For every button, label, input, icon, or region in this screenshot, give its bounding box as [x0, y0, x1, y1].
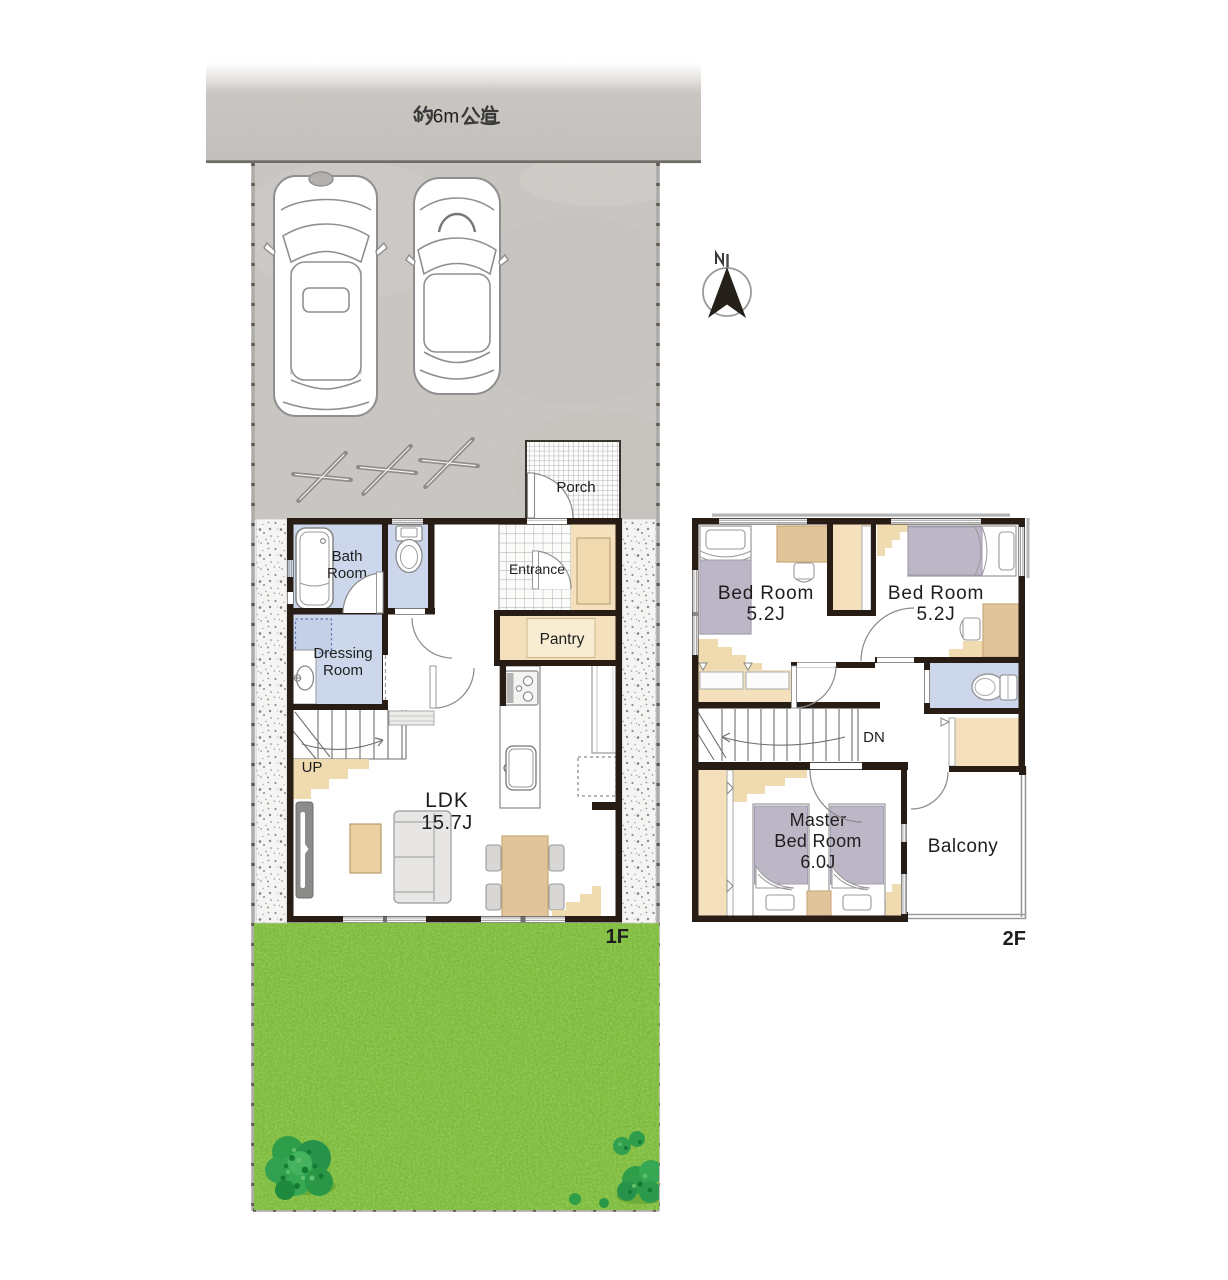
svg-text:Porch: Porch — [556, 479, 595, 496]
svg-text:UP: UP — [302, 759, 323, 776]
svg-text:Dressing: Dressing — [313, 645, 372, 662]
svg-text:15.7J: 15.7J — [421, 812, 472, 834]
svg-text:5.2J: 5.2J — [746, 604, 785, 625]
svg-text:DN: DN — [863, 729, 885, 746]
svg-text:Balcony: Balcony — [928, 836, 998, 857]
svg-text:Room: Room — [323, 662, 363, 679]
svg-text:Entrance: Entrance — [509, 561, 565, 577]
svg-text:Bed Room: Bed Room — [774, 831, 861, 851]
svg-text:Bath: Bath — [332, 548, 363, 565]
svg-text:2F: 2F — [1003, 928, 1026, 950]
svg-text:Bed Room: Bed Room — [888, 583, 984, 604]
svg-text:LDK: LDK — [425, 789, 469, 812]
svg-text:Master: Master — [790, 810, 847, 830]
svg-text:1F: 1F — [606, 926, 629, 948]
svg-text:Pantry: Pantry — [540, 631, 585, 648]
svg-text:5.2J: 5.2J — [916, 604, 955, 625]
svg-text:Bed Room: Bed Room — [718, 583, 814, 604]
svg-text:6.0J: 6.0J — [800, 852, 835, 872]
svg-text:6m: 6m — [433, 107, 459, 128]
